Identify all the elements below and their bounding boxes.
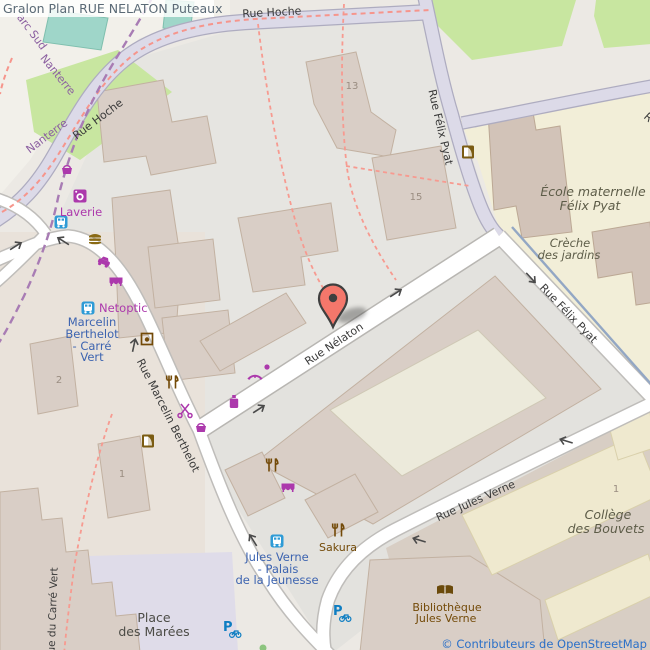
laundry-icon [74,190,87,203]
school-label-ecole: École maternelle [540,184,646,199]
door-icon [462,146,474,159]
poi-label-sakura: Sakura [319,541,357,554]
bus-stop-icon [82,302,95,315]
building-number: 15 [410,192,423,203]
school-label-college: Collège [585,507,632,522]
door-icon [142,435,154,448]
map-container: P P Rue Hoche Rue Hoche Rue Félix Pyat R… [0,0,650,650]
fastfood-icon [89,234,101,244]
bus-stop-label: de la Jeunesse [235,573,318,587]
school-label-creche: des jardins [538,248,601,262]
shop-label-netoptic: Netoptic [99,301,148,315]
place-label-marees: Place [137,610,171,625]
library-book-icon [437,585,453,594]
osm-attribution-link[interactable]: © Contributeurs de OpenStreetMap [441,637,647,650]
shop-label-laverie: Laverie [60,205,102,219]
marker-dot [329,294,337,302]
school-label-ecole: Félix Pyat [560,198,622,213]
bus-stop-label: Vert [80,350,104,364]
bus-stop-icon [271,535,284,548]
poi-label-bibliotheque: Jules Verne [415,612,477,625]
shop-dot-icon [264,364,269,369]
building-number: 1 [119,469,125,480]
place-label-marees: des Marées [118,624,189,639]
building-number: 13 [346,81,359,92]
building-number: 1 [613,484,619,495]
title-overlay: Gralon Plan RUE NELATON Puteaux [0,0,222,17]
building-number: 2 [56,375,62,386]
map-canvas[interactable]: P P Rue Hoche Rue Hoche Rue Félix Pyat R… [0,0,650,650]
page-title: Gralon Plan RUE NELATON Puteaux [3,1,222,16]
school-label-college: des Bouvets [568,521,645,536]
